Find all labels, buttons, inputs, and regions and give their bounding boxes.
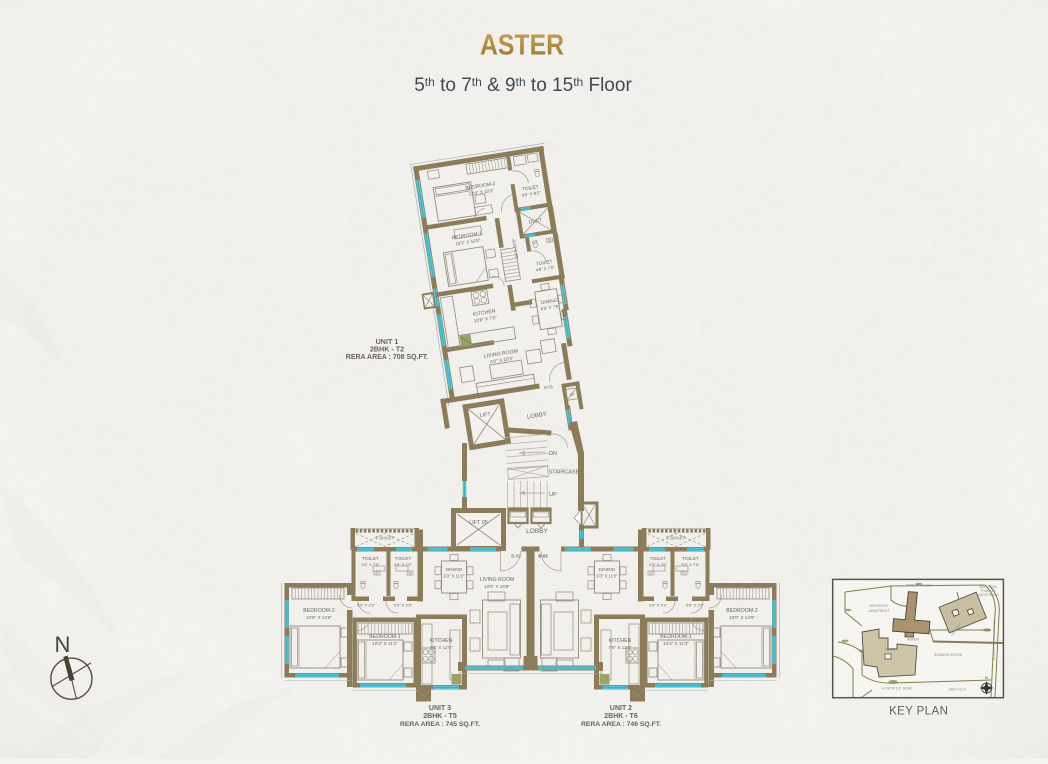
svg-text:B-02: B-02 [538,554,548,559]
svg-text:ASTER: ASTER [907,638,919,642]
svg-text:RERA AREA : 745 SQ.FT.: RERA AREA : 745 SQ.FT. [400,721,480,728]
svg-text:10'0" X 18'9": 10'0" X 18'9" [484,584,510,589]
svg-text:6'3" X 11'0": 6'3" X 11'0" [443,574,465,579]
svg-text:2BHK - T6: 2BHK - T6 [604,713,638,720]
svg-text:10'3" X 11'3": 10'3" X 11'3" [663,641,689,646]
svg-text:N: N [55,632,71,657]
svg-text:BEDROOM-1: BEDROOM-1 [660,634,692,640]
svg-text:F.SHAFT: F.SHAFT [667,536,686,541]
svg-text:19: 19 [570,392,575,397]
svg-text:RERA AREA : 708 SQ.FT.: RERA AREA : 708 SQ.FT. [346,354,429,361]
svg-text:KITCHEN: KITCHEN [430,638,453,644]
svg-text:UP: UP [549,492,557,498]
svg-text:10'0" X 14'9": 10'0" X 14'9" [306,615,332,620]
svg-text:KITCHEN: KITCHEN [609,638,632,644]
svg-text:6'3" X 11'0": 6'3" X 11'0" [596,574,618,579]
svg-text:UNIT 3: UNIT 3 [429,705,451,712]
svg-text:DINING: DINING [599,567,616,573]
svg-text:9'9" X 2'3": 9'9" X 2'3" [394,603,413,608]
svg-text:APARTMENT: APARTMENT [869,609,890,613]
svg-text:UNIT 2: UNIT 2 [610,705,632,712]
svg-text:SOMAIYA HOUSE: SOMAIYA HOUSE [934,653,963,657]
svg-text:KEY PLAN: KEY PLAN [889,706,948,718]
svg-text:60-0 MTR P. THAKARE ROAD: 60-0 MTR P. THAKARE ROAD [992,619,996,661]
svg-text:MIGHROOT: MIGHROOT [870,604,889,608]
svg-text:BEDROOM-2: BEDROOM-2 [303,608,335,614]
svg-text:LIFT 05: LIFT 05 [469,520,487,526]
svg-text:9'9" X 2'3": 9'9" X 2'3" [649,603,668,608]
svg-text:5'9" X 2'3": 5'9" X 2'3" [357,603,376,608]
svg-text:B-03: B-03 [511,554,521,559]
svg-text:BEDROOM-1: BEDROOM-1 [369,634,401,640]
svg-text:LIVING ROOM: LIVING ROOM [480,577,515,583]
svg-text:ASTER: ASTER [480,30,564,62]
svg-text:LOBBY: LOBBY [526,528,548,535]
svg-text:7'6" X 11'5": 7'6" X 11'5" [608,645,631,650]
svg-text:10'0" X 14'9": 10'0" X 14'9" [729,615,755,620]
svg-text:JAIN VILLA: JAIN VILLA [948,688,966,692]
svg-text:2BHK - T5: 2BHK - T5 [423,713,457,720]
svg-text:5'5" X 7'6": 5'5" X 7'6" [681,562,700,567]
svg-text:5'5" X 7'6": 5'5" X 7'6" [361,562,380,567]
svg-text:F.SHAFT: F.SHAFT [376,536,395,541]
svg-text:DN: DN [549,451,557,457]
svg-text:5'9" X 2'3": 5'9" X 2'3" [686,603,705,608]
svg-text:7'6" X 11'5": 7'6" X 11'5" [429,645,452,650]
svg-text:DINING: DINING [446,567,463,573]
svg-text:STAIRCASE: STAIRCASE [549,470,580,476]
svg-text:2BHK - T2: 2BHK - T2 [370,345,404,354]
svg-text:RERA AREA : 746 SQ.FT.: RERA AREA : 746 SQ.FT. [581,721,661,728]
svg-text:BEDROOM-2: BEDROOM-2 [726,608,758,614]
svg-text:4'9" X 7'6": 4'9" X 7'6" [394,562,413,567]
svg-text:4'9" X 7'6": 4'9" X 7'6" [649,562,668,567]
svg-text:4-0 MTR D.P. ROAD: 4-0 MTR D.P. ROAD [881,687,913,691]
svg-text:OLIVE: OLIVE [885,648,896,652]
svg-text:10'3" X 11'3": 10'3" X 11'3" [372,641,398,646]
svg-text:AUDITORIUM: AUDITORIUM [978,593,998,597]
svg-text:MRIDAY TALKIES: MRIDAY TALKIES [906,584,932,588]
